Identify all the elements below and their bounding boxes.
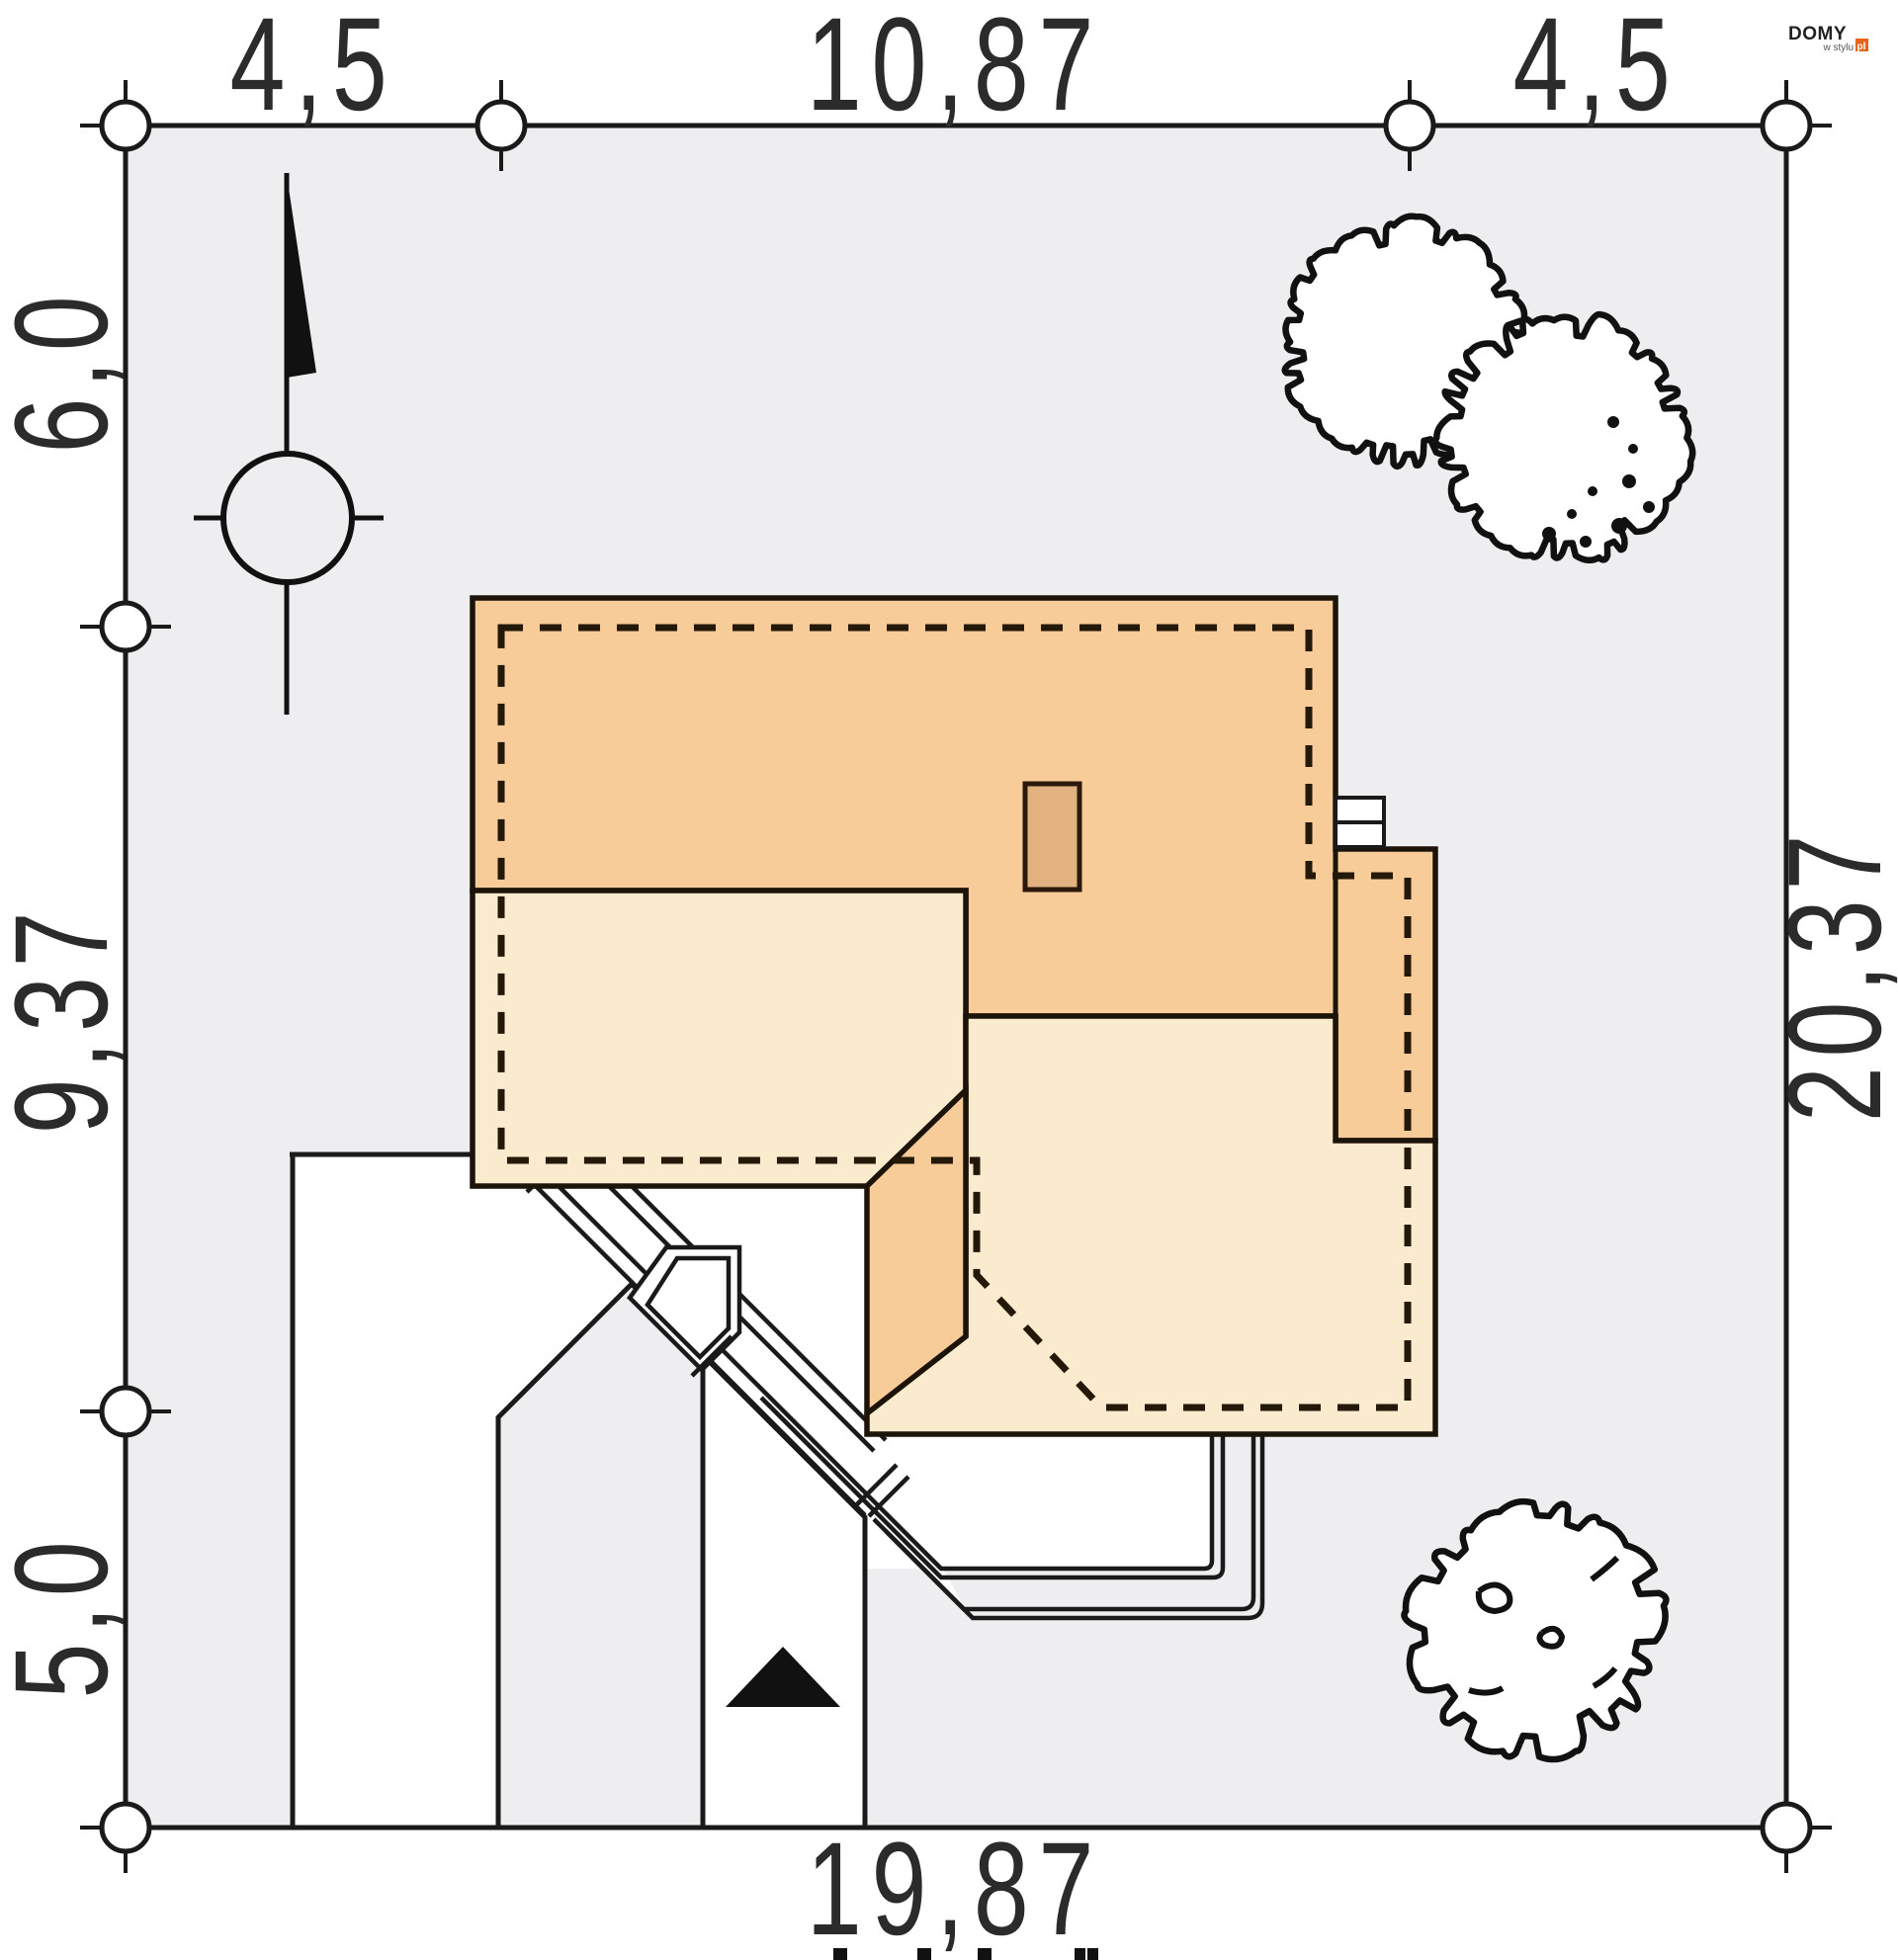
svg-text:19,87: 19,87 bbox=[807, 1816, 1103, 1960]
svg-text:5,0: 5,0 bbox=[0, 1532, 135, 1699]
svg-text:9,37: 9,37 bbox=[0, 902, 135, 1135]
svg-text:10,87: 10,87 bbox=[807, 0, 1103, 138]
svg-text:DOMY: DOMY bbox=[1788, 24, 1847, 44]
svg-text:pl: pl bbox=[1857, 42, 1866, 52]
svg-text:6,0: 6,0 bbox=[0, 287, 135, 454]
svg-text:w stylu: w stylu bbox=[1822, 43, 1854, 53]
svg-text:20,37: 20,37 bbox=[1762, 825, 1898, 1122]
svg-text:4,5: 4,5 bbox=[1513, 0, 1681, 138]
svg-text:4,5: 4,5 bbox=[230, 0, 397, 138]
